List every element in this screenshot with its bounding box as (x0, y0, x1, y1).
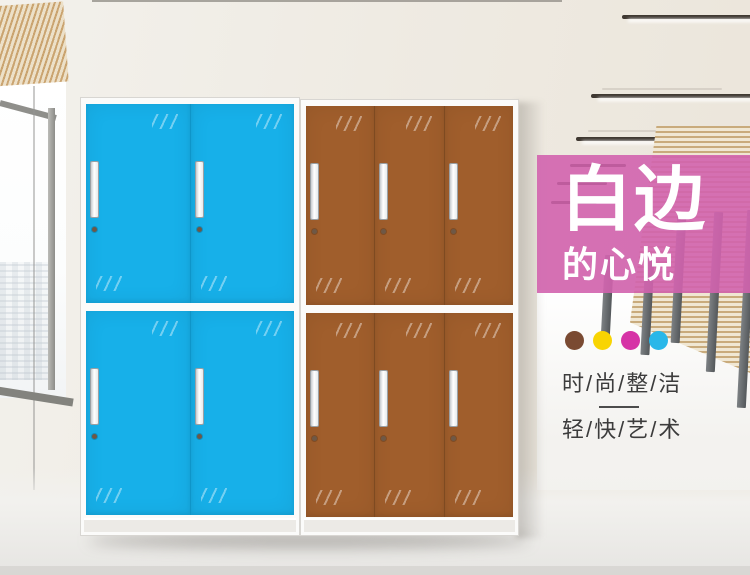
keyhole (312, 436, 317, 441)
shine-mark (406, 116, 432, 131)
banner-title: 白边 (561, 165, 707, 236)
ceiling-light (622, 15, 750, 19)
shine-mark (475, 323, 501, 338)
door-handle (449, 163, 458, 220)
shine-mark (455, 278, 481, 293)
cabinet-base (304, 518, 515, 532)
keyhole (451, 436, 456, 441)
brown-locker-door-r1-c1 (306, 106, 374, 305)
tagline-divider (599, 406, 639, 408)
locker-cabinet-blue (80, 97, 300, 536)
floor-shadow-strip (0, 566, 750, 575)
cabinet-base (84, 518, 296, 532)
shine-mark (201, 488, 227, 503)
shine-mark (385, 490, 411, 505)
shine-mark (385, 278, 411, 293)
door-handle (449, 370, 458, 427)
ceiling-edge-line (92, 0, 562, 2)
window-mullion (33, 86, 35, 490)
shine-mark (475, 116, 501, 131)
shine-mark (316, 490, 342, 505)
taglines: 时/尚/整/洁 轻/快/艺/术 (562, 371, 682, 444)
palette-dot-cyan (649, 331, 668, 350)
locker-promo-image: 白边 的心悦 时/尚/整/洁 轻/快/艺/术 (0, 0, 750, 575)
blue-locker-door-r2-c2 (191, 311, 295, 515)
blue-locker-row-1 (86, 104, 294, 303)
shine-mark (336, 116, 362, 131)
blue-locker-row-2 (86, 311, 294, 515)
palette-dot-magenta (621, 331, 640, 350)
door-handle (195, 161, 204, 218)
keyhole (92, 434, 97, 439)
palette-dot-yellow (593, 331, 612, 350)
window-blinds (0, 2, 69, 87)
keyhole (451, 229, 456, 234)
locker-cabinet-brown (300, 99, 519, 536)
shine-mark (96, 276, 122, 291)
tagline-line2: 轻/快/艺/术 (562, 417, 682, 443)
ceiling-groove (602, 88, 722, 90)
keyhole (197, 434, 202, 439)
door-handle (90, 161, 99, 218)
shine-mark (256, 114, 282, 129)
shine-mark (152, 114, 178, 129)
palette-dot-brown (565, 331, 584, 350)
keyhole (92, 227, 97, 232)
shine-mark (455, 490, 481, 505)
keyhole (381, 436, 386, 441)
blue-locker-door-r2-c1 (86, 311, 190, 515)
brown-locker-door-r1-c3 (445, 106, 513, 305)
shine-mark (256, 321, 282, 336)
door-handle (90, 368, 99, 425)
blue-locker-door-r1-c1 (86, 104, 190, 303)
brown-locker-door-r2-c2 (375, 313, 443, 517)
door-handle (310, 370, 319, 427)
shine-mark (316, 278, 342, 293)
banner-subtitle: 的心悦 (562, 247, 676, 283)
brown-locker-door-r2-c1 (306, 313, 374, 517)
door-handle (379, 163, 388, 220)
keyhole (197, 227, 202, 232)
keyhole (312, 229, 317, 234)
color-palette-dots (565, 331, 668, 350)
window-frame-vertical (48, 108, 55, 390)
shine-mark (152, 321, 178, 336)
promo-banner: 白边 的心悦 (537, 155, 750, 293)
shine-mark (96, 488, 122, 503)
ceiling-light (591, 94, 750, 98)
city-skyline (0, 262, 50, 380)
door-handle (310, 163, 319, 220)
brown-locker-row-1 (306, 106, 513, 305)
blue-locker-door-r1-c2 (191, 104, 295, 303)
tagline-line1: 时/尚/整/洁 (562, 371, 682, 397)
door-handle (195, 368, 204, 425)
shine-mark (406, 323, 432, 338)
brown-locker-door-r2-c3 (445, 313, 513, 517)
brown-locker-door-r1-c2 (375, 106, 443, 305)
keyhole (381, 229, 386, 234)
brown-locker-row-2 (306, 313, 513, 517)
shine-mark (336, 323, 362, 338)
door-handle (379, 370, 388, 427)
shine-mark (201, 276, 227, 291)
